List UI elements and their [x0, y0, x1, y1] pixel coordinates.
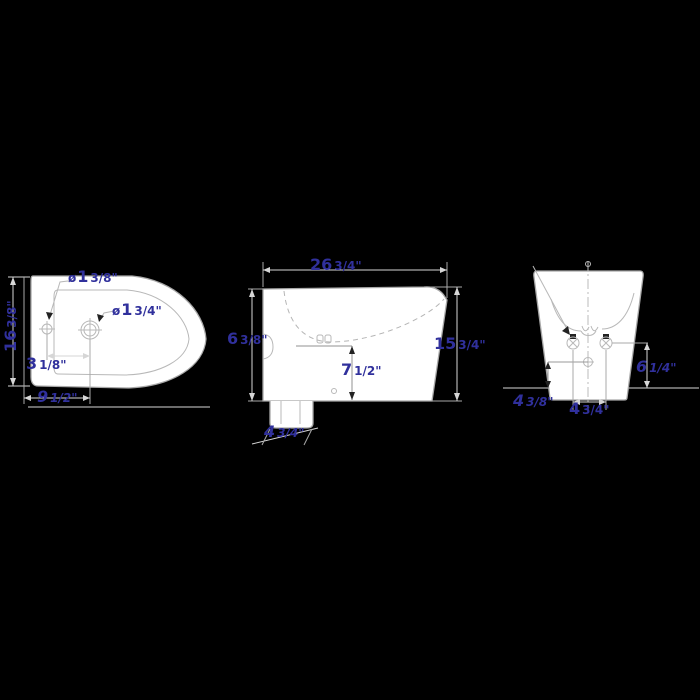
dim-top-hole-spacing: 31/8" [26, 355, 66, 373]
side-view [248, 262, 462, 445]
dim-side-overall-length: 263/4" [310, 256, 362, 274]
dim-side-outlet-offset: 43/4" [264, 423, 304, 441]
dim-side-left-height: 63/8" [227, 330, 267, 348]
rear-view [503, 261, 699, 412]
dim-top-small-hole-diameter: ø13/8" [68, 268, 118, 286]
dim-top-large-hole-diameter: ø13/4" [112, 301, 162, 319]
dim-rear-outlet-height: 43/8" [513, 392, 553, 410]
drawing-page: ø13/8" ø13/4" 163/8" 31/8" 91/2" 263/4" … [0, 0, 700, 700]
dim-side-bowl-depth: 71/2" [341, 361, 381, 379]
dim-top-overall-width: 163/8" [2, 300, 20, 352]
drawing-canvas [0, 0, 700, 700]
side-view-outline [263, 287, 447, 401]
dim-rear-inlet-height: 61/4" [636, 358, 676, 376]
dim-side-overall-height: 153/4" [434, 335, 486, 353]
diameter-symbol: ø [112, 304, 120, 318]
diameter-symbol: ø [68, 271, 76, 285]
dim-top-hole-offset: 91/2" [37, 388, 77, 406]
dim-rear-inlet-spacing: 43/4" [569, 400, 609, 418]
